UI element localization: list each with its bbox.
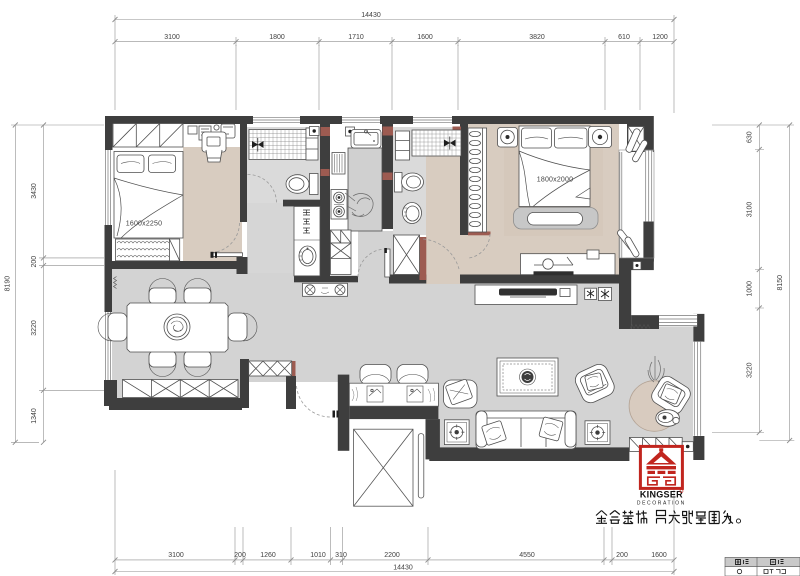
svg-text:3100: 3100 [164,34,180,41]
svg-text:14430: 14430 [361,12,381,19]
svg-text:3220: 3220 [747,362,754,378]
svg-text:3100: 3100 [747,202,754,218]
svg-text:4550: 4550 [519,552,535,559]
svg-text:1260: 1260 [260,552,276,559]
svg-text:3820: 3820 [529,34,545,41]
svg-text:KINGSER: KINGSER [640,490,683,500]
svg-text:1600x2250: 1600x2250 [126,221,162,228]
svg-text:8150: 8150 [777,275,784,291]
svg-text:200: 200 [234,552,246,559]
svg-text:1800: 1800 [269,34,285,41]
svg-text:1200: 1200 [652,34,668,41]
svg-text:200: 200 [31,256,38,268]
svg-text:310: 310 [335,552,347,559]
svg-text:3100: 3100 [168,552,184,559]
svg-text:1600: 1600 [651,552,667,559]
svg-text:1000: 1000 [747,281,754,297]
svg-text:8190: 8190 [5,276,12,292]
svg-text:3220: 3220 [31,320,38,336]
svg-text:1010: 1010 [310,552,326,559]
svg-text:14430: 14430 [393,565,413,572]
svg-text:3430: 3430 [31,183,38,199]
svg-text:1600: 1600 [417,34,433,41]
svg-text:1800x2000: 1800x2000 [537,177,573,184]
svg-text:200: 200 [616,552,628,559]
svg-text:2200: 2200 [384,552,400,559]
svg-text:610: 610 [618,34,630,41]
svg-text:1340: 1340 [31,408,38,424]
svg-text:1710: 1710 [348,34,364,41]
svg-text:630: 630 [747,131,754,143]
svg-text:DECORATION: DECORATION [637,501,686,507]
